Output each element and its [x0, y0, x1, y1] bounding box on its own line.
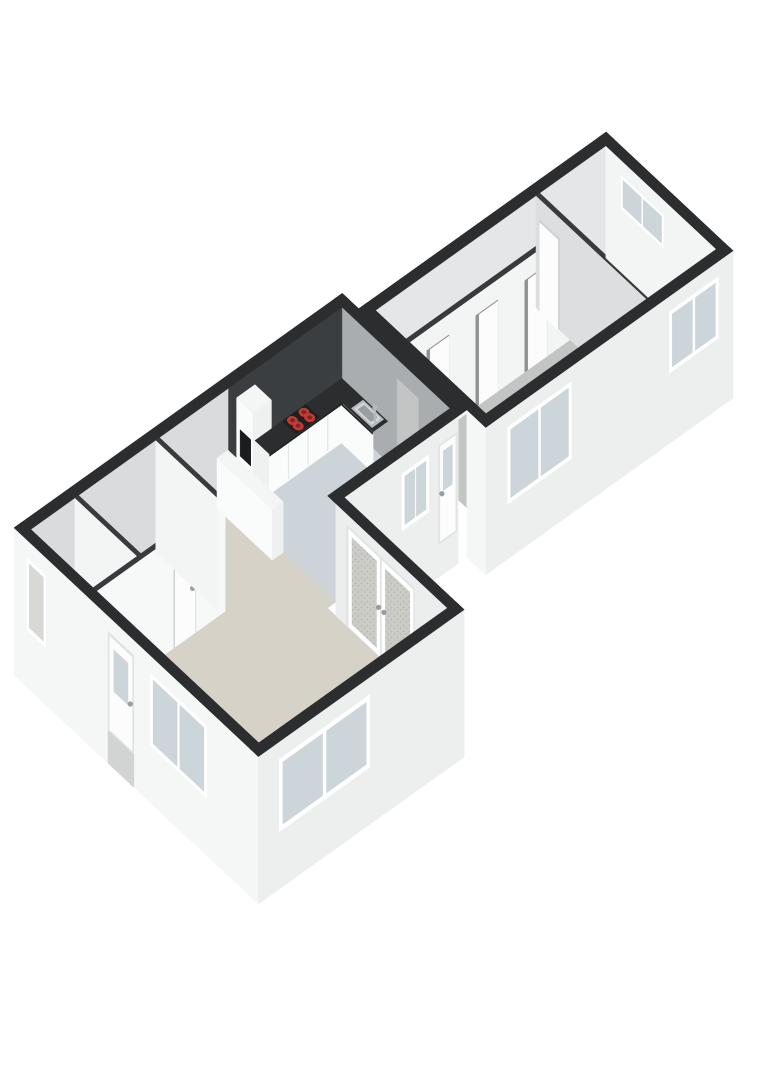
- endroom-door: [540, 223, 558, 330]
- front-door-handle: [128, 702, 133, 707]
- hall-window-glass: [29, 564, 43, 641]
- counter-seam: [327, 416, 328, 452]
- back-door-glass: [443, 444, 452, 490]
- patio-door-handle: [376, 605, 381, 610]
- stove-burner-center: [296, 424, 300, 428]
- wing-left-wall: [467, 410, 486, 575]
- stove-burner-center: [307, 416, 311, 420]
- kitchen-window-glass: [405, 469, 415, 525]
- counter-seam: [308, 430, 309, 466]
- closet-door: [479, 301, 498, 405]
- floorplan-svg: [0, 0, 764, 1080]
- floorplan-3d-view: [0, 0, 764, 1080]
- stove-burner-center: [290, 419, 294, 423]
- patio-door-handle: [382, 610, 387, 615]
- back-door-handle: [439, 491, 444, 496]
- kitchen-peninsula-side: [272, 502, 283, 560]
- stove-burner-center: [302, 410, 306, 414]
- faucet-head: [373, 405, 378, 410]
- kitchen-window-glass: [416, 461, 426, 516]
- counter-seam: [288, 444, 289, 480]
